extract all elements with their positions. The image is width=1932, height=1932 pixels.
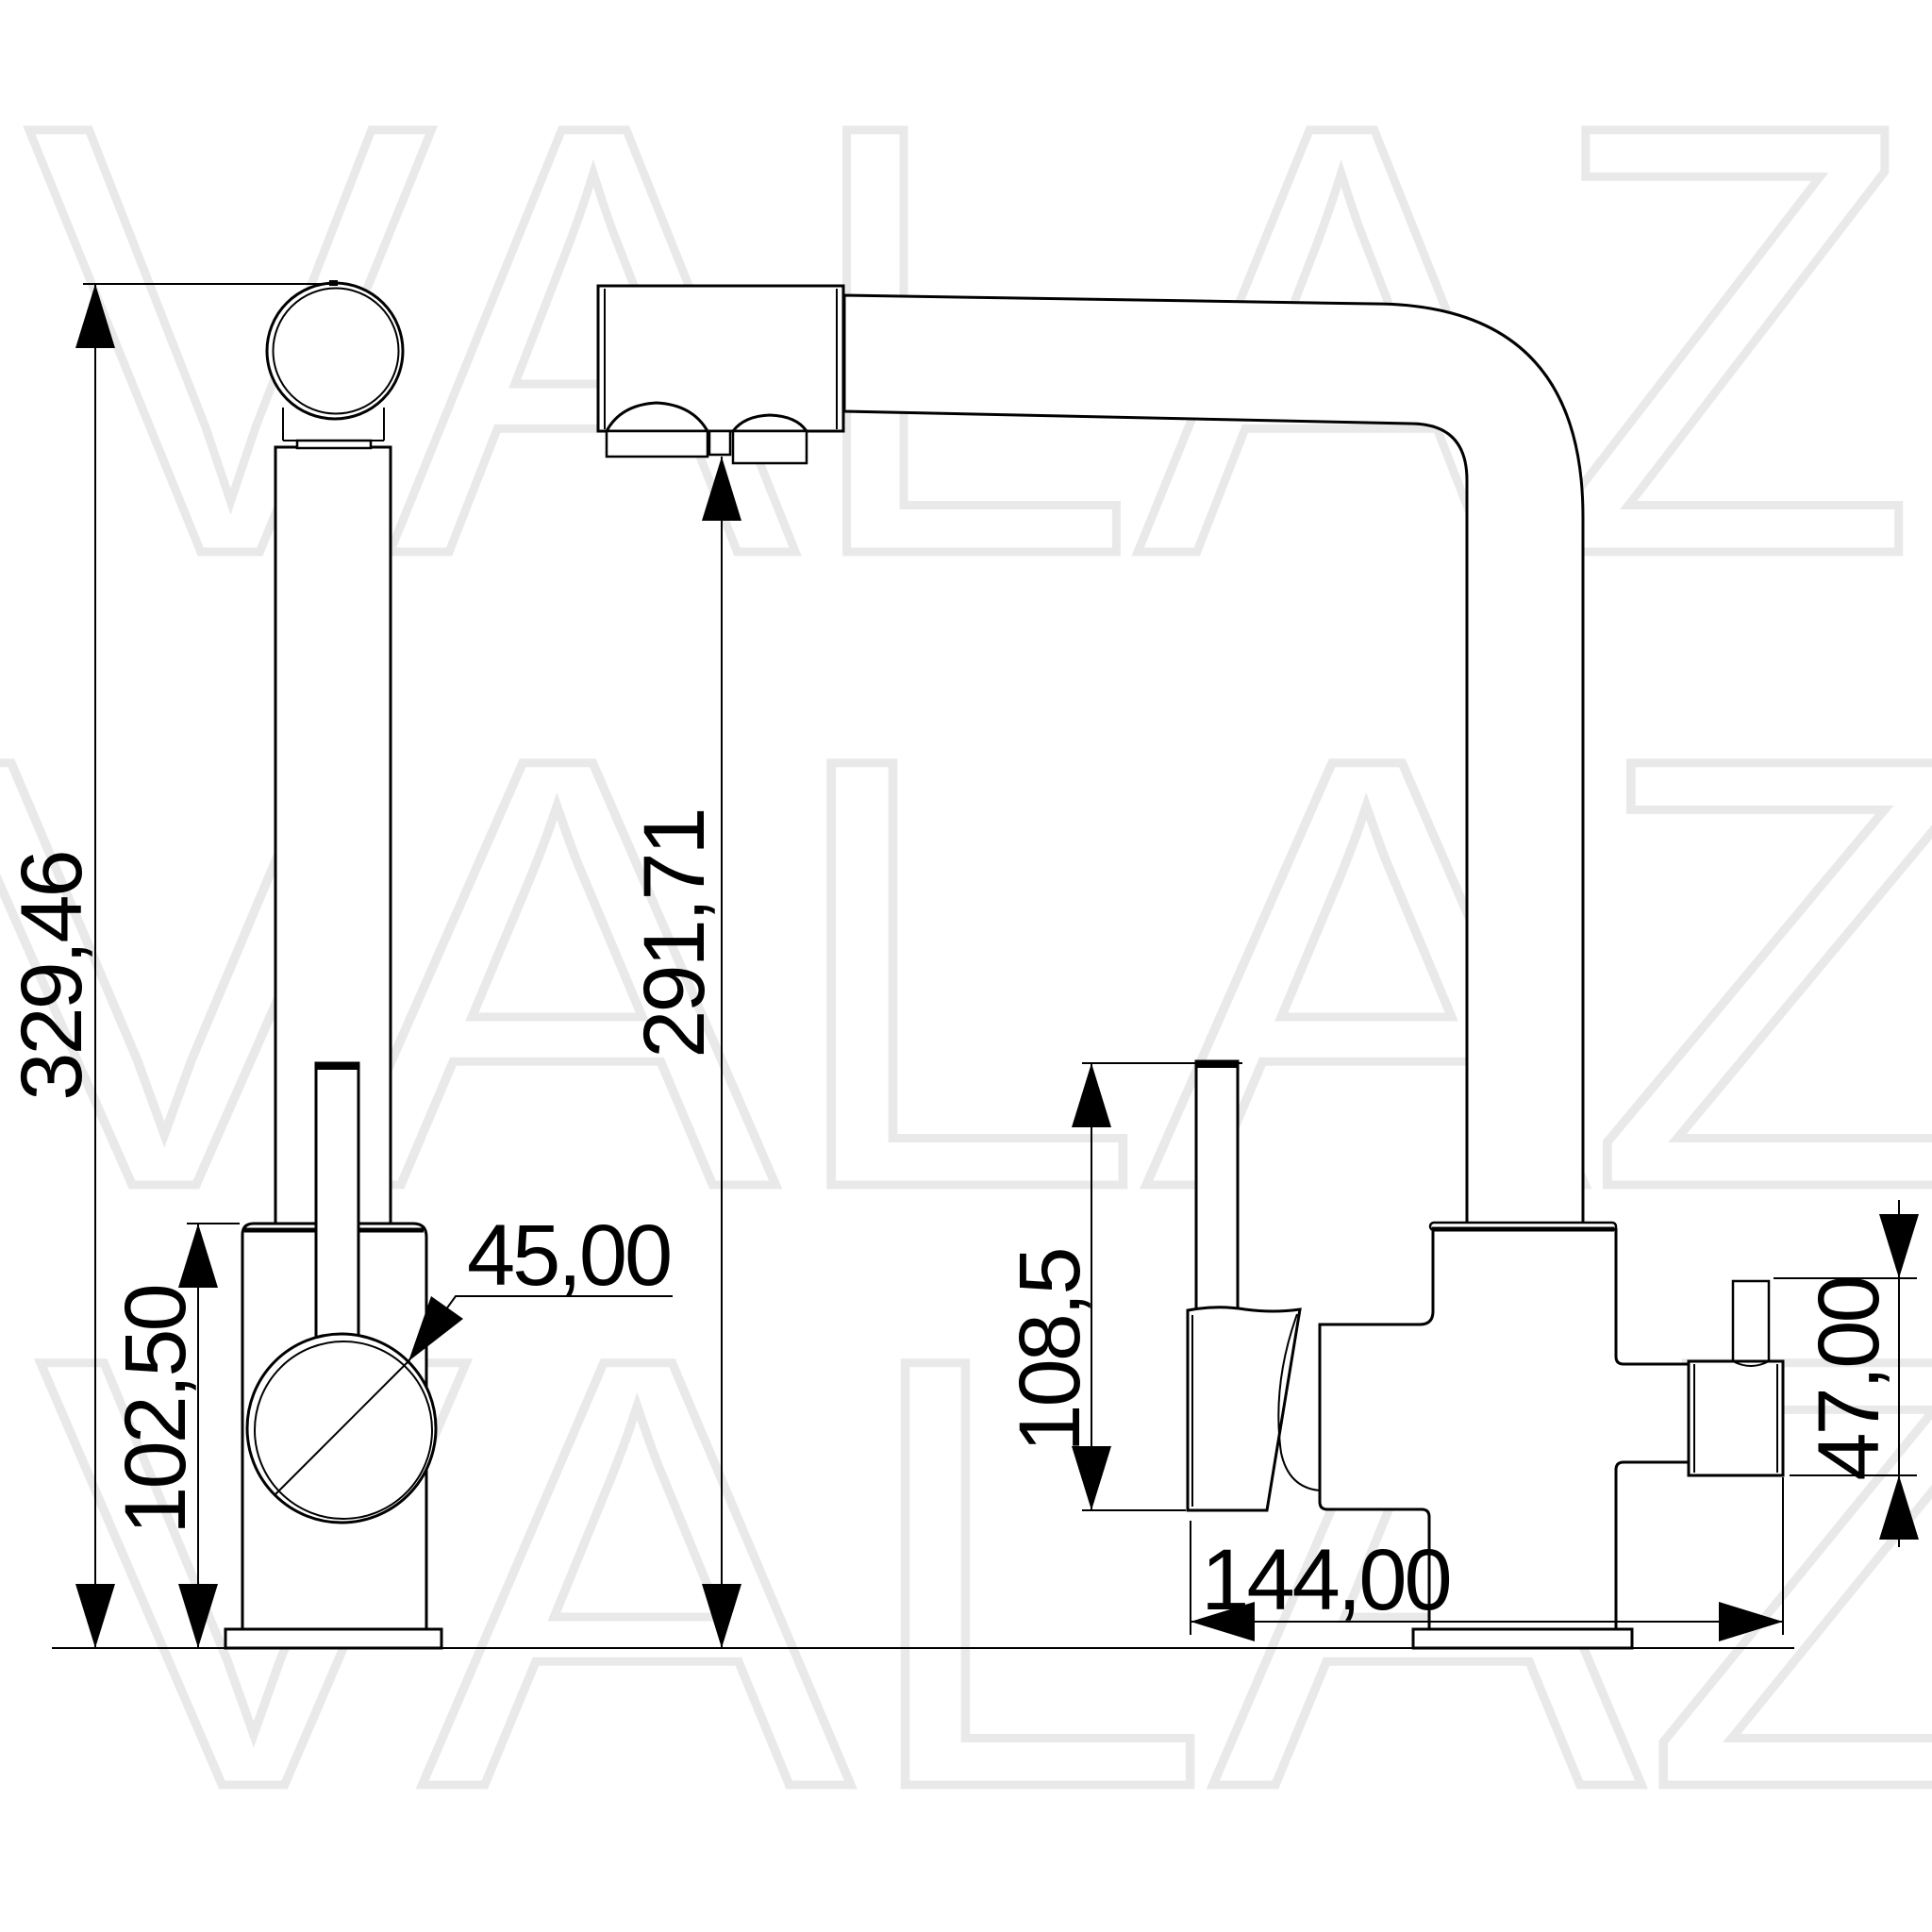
side-outlet-pipe: [1733, 1281, 1769, 1363]
lever-height-value: 108,5: [1002, 1249, 1098, 1452]
outlet-height-value: 291,71: [626, 809, 723, 1058]
aerator-skirt-right: [733, 431, 807, 463]
depth-value: 144,00: [1201, 1532, 1449, 1628]
total-height-value: 329,46: [4, 852, 100, 1100]
front-lever-rod: [1196, 1061, 1238, 1314]
side-head-cap-step: [297, 441, 371, 448]
side-lever-rod: [316, 1063, 358, 1337]
aerator-outlet-nub: [709, 431, 730, 455]
technical-drawing-page: VALAZ VALAZ VALAZ: [0, 0, 1932, 1932]
side-outlet-block: [1689, 1361, 1783, 1475]
side-outlet-height-value: 47,00: [1801, 1277, 1897, 1480]
side-base-plate: [225, 1629, 441, 1648]
side-lever-rod-cap: [316, 1063, 358, 1070]
handle-diameter-value: 45,00: [467, 1207, 670, 1304]
body-height-value: 102,50: [108, 1286, 204, 1534]
front-base-plate: [1413, 1629, 1632, 1648]
side-spout-head-circle: [267, 283, 403, 419]
faucet-dimension-drawing: VALAZ VALAZ VALAZ: [0, 0, 1932, 1932]
aerator-skirt-left: [607, 431, 708, 457]
